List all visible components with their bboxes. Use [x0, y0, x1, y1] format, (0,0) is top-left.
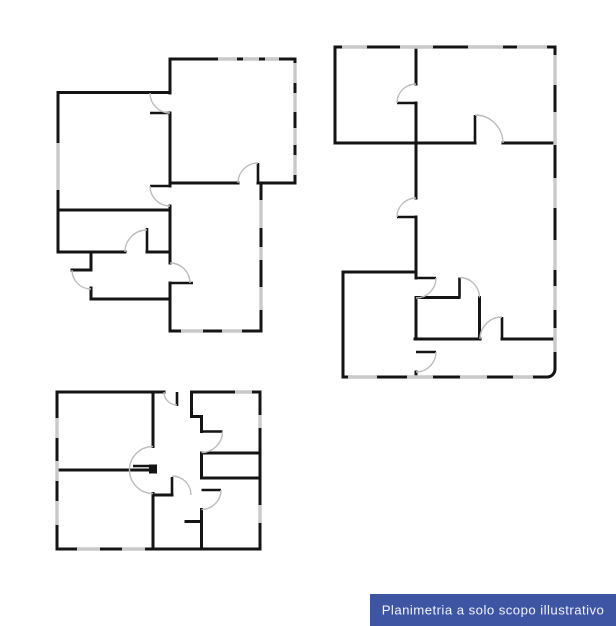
disclaimer-banner: Planimetria a solo scopo illustrativo — [370, 594, 616, 626]
floor-plan-page: Planimetria a solo scopo illustrativo — [0, 0, 616, 626]
plan3-pocket-door-stop — [149, 465, 157, 474]
floor-plans-image: Planimetria a solo scopo illustrativo — [0, 0, 616, 626]
banner-text: Planimetria a solo scopo illustrativo — [382, 603, 605, 618]
